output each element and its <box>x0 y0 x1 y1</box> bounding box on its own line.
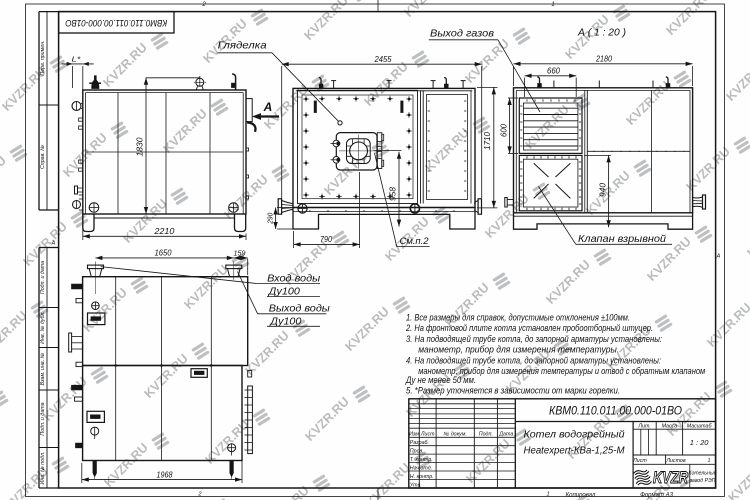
svg-text:Котельный: Котельный <box>688 470 716 477</box>
svg-text:Подп. и дата: Подп. и дата <box>40 261 46 294</box>
svg-text:манометр, прибор для измерения: манометр, прибор для измерения температу… <box>418 345 619 355</box>
svg-text:Подп.: Подп. <box>479 431 493 437</box>
svg-text:1: 1 <box>551 2 554 8</box>
svg-text:Лист: Лист <box>632 458 647 464</box>
svg-text:Взам. инв. №: Взам. инв. № <box>40 352 46 385</box>
svg-text:Выход газов: Выход газов <box>430 28 495 40</box>
svg-text:Справ. №: Справ. № <box>40 145 46 169</box>
svg-text:1. Все размеры для справок, до: 1. Все размеры для справок, допустимые о… <box>406 313 630 323</box>
svg-text:Дата: Дата <box>498 431 513 437</box>
svg-text:Ду100: Ду100 <box>269 315 301 327</box>
svg-text:Утв.: Утв. <box>410 482 422 488</box>
svg-text:290: 290 <box>266 213 275 225</box>
svg-text:Котел водогрейный: Котел водогрейный <box>524 430 625 441</box>
svg-text:2: 2 <box>201 2 206 8</box>
svg-text:Вход воды: Вход воды <box>267 273 320 285</box>
svg-text:Лит.: Лит. <box>637 423 650 429</box>
svg-text:Пров.: Пров. <box>410 449 424 455</box>
svg-text:Т. контр.: Т. контр. <box>410 457 433 463</box>
svg-text:1: 1 <box>708 458 711 464</box>
svg-text:А: А <box>263 100 273 114</box>
svg-text:1: 1 <box>546 492 549 498</box>
svg-text:3. На подводящей трубе котла,: 3. На подводящей трубе котла, до запорно… <box>406 334 662 344</box>
svg-text:Масса: Масса <box>662 423 678 429</box>
svg-text:958: 958 <box>388 187 397 201</box>
svg-text:Инв. № подл.: Инв. № подл. <box>40 452 46 485</box>
svg-text:Изм: Изм <box>409 431 419 437</box>
svg-text:2455: 2455 <box>374 55 392 64</box>
svg-text:Н. контр.: Н. контр. <box>410 474 434 480</box>
svg-text:159: 159 <box>234 249 247 258</box>
svg-text:Гляделка: Гляделка <box>218 40 267 52</box>
svg-text:Перв. примен.: Перв. примен. <box>40 40 46 75</box>
svg-text:KVZR: KVZR <box>653 468 689 487</box>
svg-text:2210: 2210 <box>153 227 175 236</box>
svg-text:КВМ0.110.011.00.000-01ВО: КВМ0.110.011.00.000-01ВО <box>65 18 167 28</box>
svg-text:Копировал: Копировал <box>566 492 596 498</box>
svg-text:790: 790 <box>320 235 332 244</box>
svg-text:А: А <box>716 254 721 260</box>
svg-text:1650: 1650 <box>155 249 172 258</box>
svg-text:1830: 1830 <box>135 137 144 156</box>
svg-text:2. На фронтовой плите котла ус: 2. На фронтовой плите котла установлен п… <box>405 323 653 333</box>
svg-text:Ду не менее 50 мм.: Ду не менее 50 мм. <box>405 375 476 385</box>
svg-text:Инв. № дубл.: Инв. № дубл. <box>40 311 46 344</box>
svg-text:А: А <box>51 241 56 247</box>
svg-text:5. *Размер уточняется в зависи: 5. *Размер уточняется в зависимости от м… <box>406 385 620 395</box>
svg-text:Heatexpert-КВа-1,25-М: Heatexpert-КВа-1,25-М <box>524 446 626 457</box>
svg-text:940: 940 <box>598 183 607 197</box>
svg-text:Клапан взрывной: Клапан взрывной <box>578 233 666 245</box>
svg-text:Листов: Листов <box>665 458 686 464</box>
svg-text:2180: 2180 <box>595 55 612 64</box>
svg-text:завод РЭП: завод РЭП <box>689 478 716 484</box>
svg-text:Формат А3: Формат А3 <box>640 492 673 498</box>
svg-text:4. На подводящей трубе котла,: 4. На подводящей трубе котла, до запорно… <box>406 355 661 365</box>
svg-text:Масштаб: Масштаб <box>687 423 713 429</box>
svg-text:А ( 1 : 20 ): А ( 1 : 20 ) <box>577 27 626 39</box>
svg-text:600: 600 <box>499 124 508 137</box>
svg-text:L*: L* <box>72 55 82 64</box>
svg-text:Подп. и дата: Подп. и дата <box>40 402 46 435</box>
svg-text:Нач.отд.: Нач.отд. <box>410 466 432 472</box>
svg-text:1710: 1710 <box>483 132 492 150</box>
svg-text:№ докум.: № докум. <box>444 431 467 437</box>
svg-text:1 : 20: 1 : 20 <box>690 438 710 447</box>
svg-text:Выход воды: Выход воды <box>269 303 330 315</box>
svg-text:КВМ0.110.011.00.000-01ВО: КВМ0.110.011.00.000-01ВО <box>549 404 682 418</box>
svg-text:660: 660 <box>547 67 560 76</box>
svg-text:Лист: Лист <box>420 431 435 437</box>
svg-text:1968: 1968 <box>157 470 173 479</box>
svg-text:Разраб.: Разраб. <box>410 440 429 446</box>
svg-text:См.п.2: См.п.2 <box>400 236 430 247</box>
svg-text:2: 2 <box>197 492 201 498</box>
svg-text:Ду100: Ду100 <box>268 286 300 298</box>
